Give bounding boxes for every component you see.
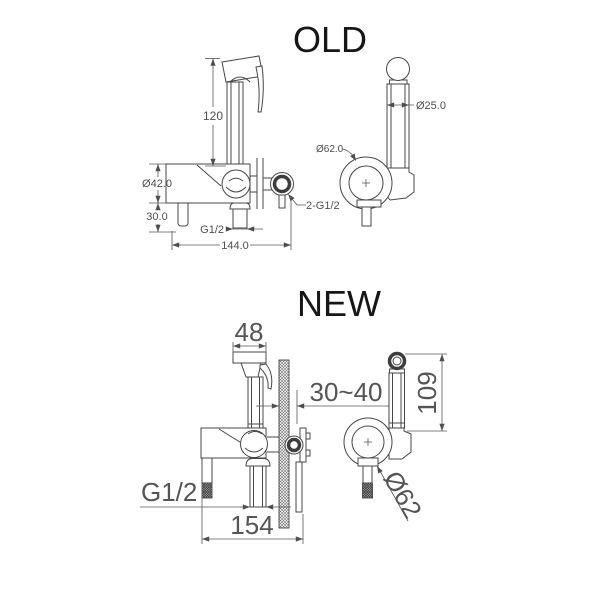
dim-label: 120 <box>203 109 223 123</box>
old-mixer-handle <box>178 203 188 226</box>
old-hose-tube <box>227 82 243 167</box>
new-title: NEW <box>297 283 381 324</box>
outlet-pipe <box>233 209 247 228</box>
valve-stem <box>279 195 285 208</box>
sprayer-cap-ring <box>390 354 405 369</box>
holder-socket <box>241 431 268 458</box>
dim-label: Ø62 <box>378 466 429 524</box>
new-dim-holder-diameter: Ø62 <box>375 465 428 524</box>
inwall-supply-pipe <box>296 462 302 512</box>
old-dim-hose-height: 120 <box>203 59 226 167</box>
old-title: OLD <box>293 19 367 60</box>
dim-label: 144.0 <box>221 240 249 252</box>
drawing-page: OLD <box>0 0 600 600</box>
new-valve-body <box>201 428 279 507</box>
new-dim-sprayer-height: 109 <box>405 354 447 431</box>
dim-label: Ø42.0 <box>142 178 172 190</box>
new-dim-head-width: 48 <box>233 317 266 356</box>
handle-knurl-tip <box>202 483 212 498</box>
dim-label: 109 <box>412 371 442 414</box>
new-drawing: NEW <box>140 283 447 544</box>
holder-stem <box>363 466 372 483</box>
old-dim-inlet-threads: 2-G1/2 <box>286 192 340 212</box>
old-dim-holder-diameter: Ø62.0 <box>316 144 358 162</box>
dim-label: 30.0 <box>146 211 167 223</box>
dim-label: 2-G1/2 <box>306 200 340 212</box>
dim-label: Ø62.0 <box>316 144 344 155</box>
holder-flange <box>358 458 378 466</box>
sprayer-lever <box>256 66 263 112</box>
dim-label: G1/2 <box>141 477 197 507</box>
outlet-pipe <box>250 466 266 507</box>
old-side-sprayer <box>387 58 410 169</box>
dim-label: G1/2 <box>200 224 224 236</box>
old-wall-valve <box>250 158 294 209</box>
sprayer-ball-top <box>387 58 410 81</box>
old-dim-handle-drop: 30.0 <box>146 203 176 232</box>
new-side-sprayer <box>389 354 405 429</box>
dim-label: 48 <box>235 317 264 347</box>
new-mixer-handle <box>202 458 212 483</box>
new-hose-tube <box>248 377 263 430</box>
new-dim-wall-depth: 30~40 <box>256 377 392 424</box>
faucet-spec-drawing: OLD <box>0 0 600 600</box>
old-valve-body <box>166 164 250 228</box>
holder-stem <box>362 207 371 226</box>
dim-label: Ø25.0 <box>416 100 446 112</box>
old-front-view: 120 Ø42.0 30.0 <box>142 56 340 252</box>
outlet-flange <box>246 459 270 467</box>
old-dim-outlet-thread: G1/2 <box>200 224 263 236</box>
stem-knurl-tip <box>363 483 373 498</box>
dim-label: 154 <box>230 510 273 540</box>
holder-flange <box>357 200 381 207</box>
outlet-flange <box>230 203 250 209</box>
dim-label: 30~40 <box>309 377 382 407</box>
holder-socket <box>222 170 250 198</box>
old-drawing: OLD <box>142 19 446 252</box>
new-dim-outlet-thread: G1/2 <box>140 477 291 510</box>
